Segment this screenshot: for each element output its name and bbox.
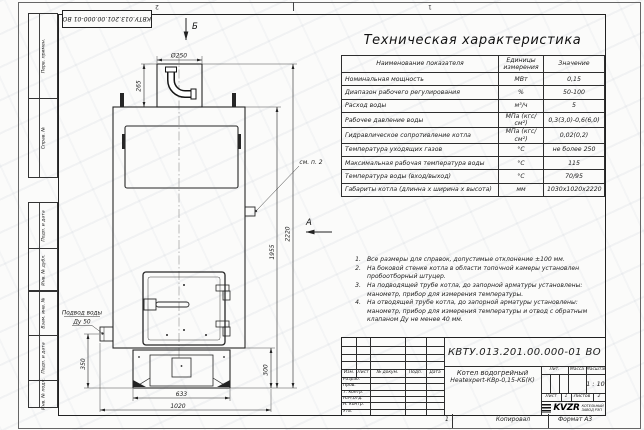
zone-mark-1: 1 — [428, 3, 432, 10]
note-item: 3.На подводящей трубе котла, до запорной… — [353, 282, 605, 299]
note-number: 2. — [353, 265, 361, 282]
line — [342, 346, 444, 347]
spec-units: °С — [499, 143, 544, 156]
line — [559, 374, 560, 393]
furnace-door — [143, 272, 230, 345]
line — [342, 361, 444, 362]
line — [452, 414, 453, 428]
margin-cell-inv-podl: Инв. № подл. — [28, 380, 58, 408]
spec-row: Максимальная рабочая температура воды°С1… — [342, 157, 605, 170]
spec-row: Расход водым³/ч5 — [342, 99, 605, 112]
spec-value: 5 — [544, 99, 605, 112]
dim-total-height: 2220 — [285, 226, 292, 241]
title-block: Изм. Лист № докум. Подп. Дата Разраб. Пр… — [341, 337, 606, 416]
notes-list: 1.Все размеры для справок, допустимые от… — [353, 256, 605, 325]
margin-cell-inv-dubl: Инв. № дубл. — [28, 248, 58, 291]
base-outline — [133, 350, 230, 388]
view-label-a: А — [305, 218, 312, 228]
spec-value: 50-100 — [544, 86, 605, 99]
door-handle-base — [144, 299, 156, 310]
spec-units: мм — [499, 183, 544, 196]
flue-elbow — [166, 67, 197, 99]
spec-col-value: Значение — [544, 56, 605, 73]
spec-value: 70/95 — [544, 170, 605, 183]
company-name-line2: ЗАВОД РЭП — [582, 408, 604, 412]
role-utv: Утв. — [343, 409, 370, 415]
top-pins — [120, 93, 241, 149]
spec-row: Температура воды (вход/выход)°С70/95 — [342, 170, 605, 183]
chimney-duct — [157, 64, 202, 107]
spec-units: °С — [499, 157, 544, 170]
spec-units: МВт — [499, 73, 544, 86]
spec-value: 0,02(0,2) — [544, 128, 605, 143]
rev-header-list: Лист — [356, 369, 370, 377]
spec-value: 0,3(3,0)-0,6(6,0) — [544, 113, 605, 128]
margin-cell-sprav-no: Справ. № — [28, 98, 58, 178]
spec-units: м³/ч — [499, 99, 544, 112]
dim-inlet-height: 350 — [80, 358, 87, 370]
spec-name: Температура уходящих газов — [342, 143, 499, 156]
spec-col-units: Единицы измерения — [499, 56, 544, 73]
dim-body-height: 1955 — [269, 244, 276, 259]
dimension-labels: Ø250 265 1955 2220 350 300 633 1020 см. … — [62, 53, 323, 411]
spec-name: Габариты котла (длинна х ширина х высота… — [342, 183, 499, 196]
dimension-lines — [88, 60, 293, 410]
note-item: 4.На отводящей трубе котла, до запорной … — [353, 299, 605, 325]
dim-total-width: 1020 — [170, 403, 185, 410]
side-fitting — [245, 207, 255, 216]
product-name-cell: Котел водогрейный Heatexpert-КВр-0,15-КБ… — [444, 366, 541, 418]
spec-units: % — [499, 86, 544, 99]
margin-cell-perv-primen: Перв. примен. — [28, 13, 58, 99]
margin-spacer — [28, 178, 58, 203]
view-label-b: Б — [192, 22, 198, 32]
doc-number: КВТУ.013.201.00.000-01 ВО — [444, 338, 605, 366]
left-margin-strip: Перв. примен. Справ. № Подп. и дата Инв.… — [28, 14, 58, 414]
ash-box — [172, 358, 191, 377]
spec-row: Температура уходящих газов°Сне более 250 — [342, 143, 605, 156]
spec-row: Габариты котла (длинна х ширина х высота… — [342, 183, 605, 196]
spec-header-row: Наименование показателя Единицы измерени… — [342, 56, 605, 73]
margin-label: Инв. № дубл. — [42, 254, 47, 285]
base-pedestal — [133, 350, 230, 388]
view-labels: Б А — [192, 22, 312, 228]
margin-label: Перв. примен. — [42, 39, 47, 74]
zone-mark-2: 2 — [155, 3, 159, 10]
spec-units: МПа (кгс/см²) — [499, 113, 544, 128]
base-feet — [133, 356, 230, 387]
sheets-value: 2 — [593, 393, 605, 401]
header-lit: Лит. — [541, 366, 568, 374]
boiler-front-view: Ø250 265 1955 2220 350 300 633 1020 см. … — [58, 14, 346, 414]
spec-value: 115 — [544, 157, 605, 170]
pin-left — [120, 93, 124, 107]
rev-header-podp: Подп. — [405, 369, 426, 377]
foot-left — [133, 380, 146, 387]
drawing-sheet: 2 1 Перв. примен. Справ. № Подп. и дата … — [0, 0, 644, 430]
water-inlet-label-1: Подвод воды — [62, 311, 103, 317]
rev-header-izm: Изм. — [342, 369, 356, 377]
door-outline — [143, 272, 225, 345]
zone-tick — [293, 2, 294, 11]
spec-value: не более 250 — [544, 143, 605, 156]
upper-panel — [125, 126, 238, 188]
spec-name: Гидравлическое сопротивление котла — [342, 128, 499, 143]
spec-units: °С — [499, 170, 544, 183]
margin-label: Подп. и дата — [42, 342, 47, 373]
spec-units: МПа (кгс/см²) — [499, 128, 544, 143]
note-text: На подводящей трубе котла, до запорной а… — [367, 282, 605, 299]
note-number: 3. — [353, 282, 361, 299]
spec-table: Наименование показателя Единицы измерени… — [341, 55, 605, 197]
note-item: 2.На боковой стенке котла в области топо… — [353, 265, 605, 282]
spec-name: Рабочее давление воды — [342, 113, 499, 128]
spec-row: Номинальная мощностьМВт0,15 — [342, 73, 605, 86]
note-number: 4. — [353, 299, 361, 325]
spec-row: Рабочее давление водыМПа (кгс/см²)0,3(3,… — [342, 113, 605, 128]
margin-label: Подп. и дата — [42, 210, 47, 241]
door-bolts — [166, 284, 207, 336]
panel-clamp-right — [238, 134, 242, 149]
margin-label: Инв. № подл. — [42, 378, 47, 410]
note-number: 1. — [353, 256, 361, 265]
door-hinge-bottom — [216, 321, 229, 327]
spec-name: Диапазон рабочего регулирования — [342, 86, 499, 99]
water-inlet-label-2: Ду 50 — [72, 320, 90, 326]
rev-header-dokum: № докум. — [370, 369, 405, 377]
pin-right — [232, 93, 236, 107]
company-name: КОТЕЛЬНЫЙ ЗАВОД РЭП — [582, 404, 604, 413]
panel-clamp-left — [122, 134, 126, 149]
base-opening — [150, 355, 213, 386]
spec-row: Диапазон рабочего регулирования%50-100 — [342, 86, 605, 99]
product-name-line2: Heatexpert-КВр-0,15-КБ(К) — [450, 377, 534, 384]
note-text: На боковой стенке котла в области топочн… — [367, 265, 605, 282]
dim-chimney-diameter: Ø250 — [170, 53, 187, 60]
spec-name: Температура воды (вход/выход) — [342, 170, 499, 183]
bottom-zone-mark: 1 — [445, 416, 449, 423]
spec-value: 1030х1020х2220 — [544, 183, 605, 196]
kvzr-logo-text: KVZR — [553, 403, 579, 413]
dim-chimney-height: 265 — [136, 80, 143, 92]
door-hinge-bottom-plate — [223, 327, 230, 336]
spec-row: Гидравлическое сопротивление котлаМПа (к… — [342, 128, 605, 143]
product-name-line1: Котел водогрейный — [457, 369, 528, 377]
spec-name: Номинальная мощность — [342, 73, 499, 86]
spec-table-title: Техническая характеристика — [341, 33, 604, 48]
line — [548, 414, 549, 428]
note-item: 1.Все размеры для справок, допустимые от… — [353, 256, 605, 265]
sheet-value: 1 — [561, 393, 571, 401]
view-arrows — [186, 18, 332, 232]
role-prov: Пров. — [343, 383, 370, 389]
line — [550, 374, 551, 393]
format-label: Формат А3 — [558, 416, 592, 423]
header-scale: Масштаб — [586, 366, 605, 374]
margin-label: Взам. инв. № — [42, 297, 47, 328]
spec-name: Максимальная рабочая температура воды — [342, 157, 499, 170]
margin-cell-vzam-inv: Взам. инв. № — [28, 291, 58, 336]
sheet-label: Лист — [541, 393, 561, 401]
copied-label: Копировал — [478, 416, 548, 423]
rev-header-data: Дата — [426, 369, 444, 377]
header-mass: Масса — [568, 366, 586, 374]
kvzr-logo-icon — [542, 404, 551, 413]
note-text: На отводящей трубе котла, до запорной ар… — [367, 299, 605, 325]
door-hinge-top — [216, 285, 229, 291]
foot-right — [217, 380, 230, 387]
leader-lines — [64, 166, 299, 335]
role-n-kontr: Н. контр. — [343, 402, 370, 408]
spec-value: 0,15 — [544, 73, 605, 86]
company-cell: KVZR КОТЕЛЬНЫЙ ЗАВОД РЭП — [541, 401, 605, 415]
note-text: Все размеры для справок, допустимые откл… — [367, 256, 565, 265]
scale-value: 1 : 10 — [586, 374, 605, 393]
spec-name: Расход воды — [342, 99, 499, 112]
margin-label: Справ. № — [42, 127, 47, 149]
dim-base-height: 300 — [263, 364, 270, 376]
line — [342, 354, 444, 355]
extension-lines — [84, 56, 297, 412]
door-hinge-top-plate — [223, 291, 230, 300]
sheets-label: Листов — [571, 393, 593, 401]
dim-base-width: 633 — [176, 391, 188, 398]
door-handle-bar — [156, 302, 189, 307]
margin-cell-podp-data-2: Подп. и дата — [28, 335, 58, 381]
margin-cell-podp-data-1: Подп. и дата — [28, 202, 58, 249]
spec-col-name: Наименование показателя — [342, 56, 499, 73]
note-ref-label: см. п. 2 — [299, 159, 322, 166]
